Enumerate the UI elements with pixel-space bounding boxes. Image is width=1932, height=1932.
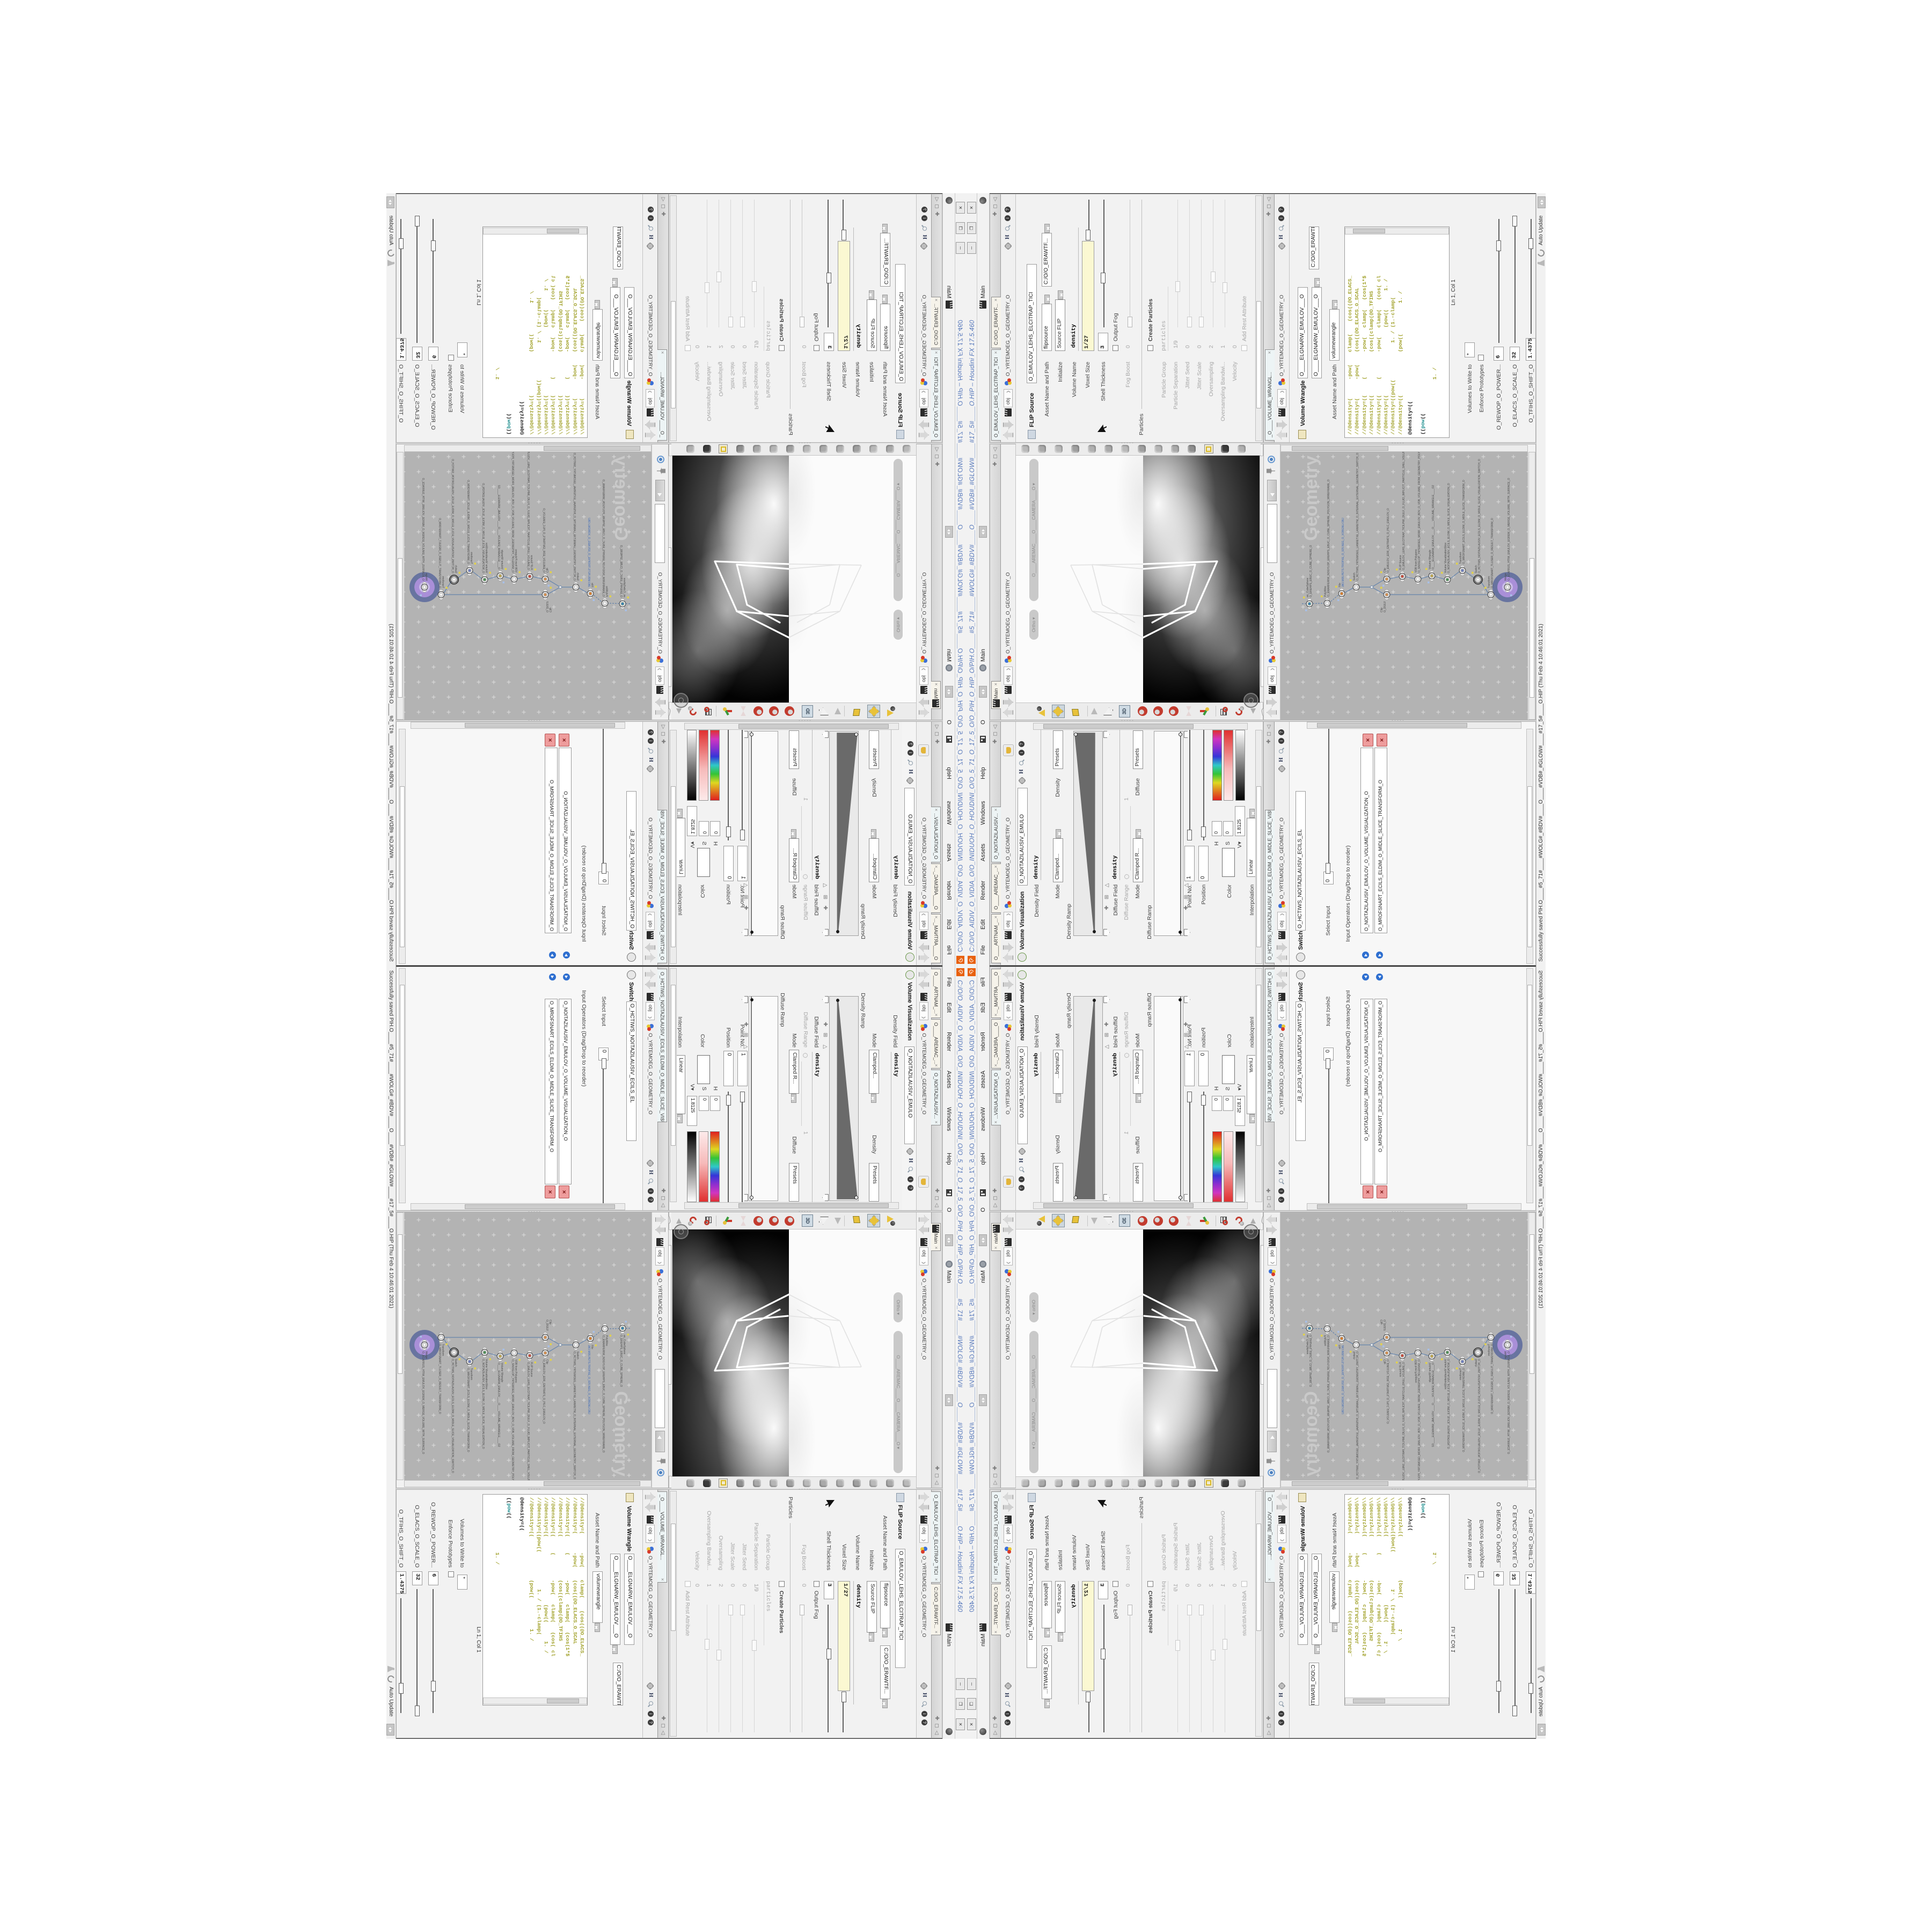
- svg-text:O_ECAFRUS_HTIW_EMULOV_EGREM_O_: O_ECAFRUS_HTIW_EMULOV_EGREM_O_MERGE_VOLU…: [421, 1351, 425, 1454]
- svg-text:Volume Wrangle: Volume Wrangle: [500, 1363, 503, 1382]
- svg-text:O_MROFSNART_TLUSER_O_RESULT_TR: O_MROFSNART_TLUSER_O_RESULT_TRANSFORM_O: [438, 518, 441, 588]
- svg-text:O_EMARFERIW_NOGYLOP_EREHPS_EBU: O_EMARFERIW_NOGYLOP_EREHPS_EBUC_O_CUBE_S…: [602, 479, 605, 597]
- svg-text:O_DIULF: O_DIULF: [1384, 1320, 1387, 1331]
- svg-text:Transform: Transform: [470, 1368, 473, 1380]
- svg-text:O_MROFSNART_ECILS_ELDIM_O_MIDL: O_MROFSNART_ECILS_ELDIM_O_MIDLE_SLICE_TR…: [1462, 1368, 1466, 1452]
- svg-text:O_SNOGLOP_YRTEMOEG_MORF_EMULOV: O_SNOGLOP_YRTEMOEG_MORF_EMULOV_BDV_O_VDB…: [511, 452, 514, 573]
- svg-text:J8O.M05.PETS.TROPXE_O_925.NEG_: J8O.M05.PETS.TROPXE_O_925.NEG_O_XOBGNU.O…: [587, 1345, 590, 1414]
- svg-text:VDB from Polygons: VDB from Polygons: [514, 549, 517, 573]
- svg-text:O____ELGNARW_EMULOV____O____VO: O____ELGNARW_EMULOV____O____VOLUME_WRANG…: [497, 1363, 500, 1447]
- svg-text:O_ECAFRUS_HTIW_EMULOV_EGREM_O_: O_ECAFRUS_HTIW_EMULOV_EGREM_O_MERGE_VOLU…: [1507, 1351, 1511, 1454]
- svg-text:an_CubeSphere: an_CubeSphere: [623, 577, 626, 597]
- svg-text:O_HCTIWS_NOITAZILAUSIV_ECILS_E: O_HCTIWS_NOITAZILAUSIV_ECILS_ELDIM_O_MID…: [1478, 459, 1481, 573]
- svg-text:Geometry: Geometry: [611, 456, 631, 541]
- svg-text:O_HCTIWS_NOITAZILAUSIV_ECILS_E: O_HCTIWS_NOITAZILAUSIV_ECILS_ELDIM_O_MID…: [451, 1359, 454, 1473]
- svg-text:O_ECAFRUS_HTIW_EMULOV_EGREM_O_: O_ECAFRUS_HTIW_EMULOV_EGREM_O_MERGE_VOLU…: [1507, 478, 1511, 581]
- svg-text:O_EREHPS_EBUC_O_CUBE_SPHERE_O: O_EREHPS_EBUC_O_CUBE_SPHERE_O: [1309, 545, 1313, 597]
- svg-text:Geometry: Geometry: [611, 1391, 631, 1476]
- svg-text:PolyWire: PolyWire: [605, 586, 608, 597]
- svg-text:O_DIULF: O_DIULF: [1384, 601, 1387, 612]
- svg-text:O_DIULF: O_DIULF: [545, 1320, 548, 1331]
- svg-text:FLIP Source: FLIP Source: [530, 1362, 533, 1377]
- svg-text:File: File: [590, 583, 594, 587]
- svg-text:Geometry: Geometry: [1301, 1391, 1321, 1476]
- svg-text:Clip: Clip: [548, 608, 552, 612]
- svg-text:PolyWire: PolyWire: [605, 1335, 608, 1346]
- svg-text:Merge: Merge: [425, 573, 428, 581]
- svg-text:Volume VisualizationSlice: Volume VisualizationSlice: [485, 543, 488, 573]
- svg-text:O_EMULOV_EDR_GNITRATS_O_PILC_E: O_EMULOV_EDR_GNITRATS_O_PILC_EMULOV_O: [1387, 1359, 1390, 1424]
- svg-text:O_EMULOV_EDR_GNITRATS_O_PILC_E: O_EMULOV_EDR_GNITRATS_O_PILC_EMULOV_O: [1387, 508, 1390, 573]
- svg-text:O_EMARFERIW_NOGYLOP_EREHPS_EBU: O_EMARFERIW_NOGYLOP_EREHPS_EBUC_O_CUBE_S…: [1327, 1335, 1330, 1453]
- svg-text:O_MROFSNART_TLUSER_O_RESULT_TR: O_MROFSNART_TLUSER_O_RESULT_TRANSFORM_O: [1491, 518, 1494, 588]
- svg-text:Transform: Transform: [441, 1344, 444, 1356]
- svg-text:O_NOITAZILAUSIV_ECILS_ELDIM_O_: O_NOITAZILAUSIV_ECILS_ELDIM_O_MIDLE_SLIC…: [1447, 1359, 1451, 1449]
- svg-text:O_SNOGLOP_YRTEMOEG_MORF_EMULOV: O_SNOGLOP_YRTEMOEG_MORF_EMULOV_BDV_O_VDB…: [1418, 452, 1421, 573]
- svg-text:O_HCTIWS_YRTEMOEG_LANRETXE_LAN: O_HCTIWS_YRTEMOEG_LANRETXE_LANRETNI_O_IN…: [1356, 1351, 1359, 1479]
- svg-text:O_EMULOV_LEHS_ELCITRAP_TICILPM: O_EMULOV_LEHS_ELCITRAP_TICILPMI_DIULF_O_…: [1402, 452, 1406, 570]
- svg-text:Switch: Switch: [576, 573, 579, 581]
- svg-text:Geometry: Geometry: [1301, 456, 1321, 541]
- svg-text:O_MROFSNART_TLUSER_O_RESULT_TR: O_MROFSNART_TLUSER_O_RESULT_TRANSFORM_O: [438, 1344, 441, 1414]
- svg-text:J8O.M05.PETS.TROPXE_O_925.NEG_: J8O.M05.PETS.TROPXE_O_925.NEG_O_XOBGNU.O…: [1342, 1345, 1345, 1414]
- svg-text:Transform: Transform: [470, 552, 473, 564]
- svg-text:O____ELGNARW_EMULOV____O____VO: O____ELGNARW_EMULOV____O____VOLUME_WRANG…: [1432, 1363, 1435, 1447]
- svg-text:an_CubeSphere: an_CubeSphere: [623, 1335, 626, 1355]
- svg-text:O____ELGNARW_EMULOV____O____VO: O____ELGNARW_EMULOV____O____VOLUME_WRANG…: [1432, 485, 1435, 569]
- svg-text:O_MROFSNART_ECILS_ELDIM_O_MIDL: O_MROFSNART_ECILS_ELDIM_O_MIDLE_SLICE_TR…: [1462, 480, 1466, 564]
- svg-text:O_NOITAZILAUSIV_ECILS_ELDIM_O_: O_NOITAZILAUSIV_ECILS_ELDIM_O_MIDLE_SLIC…: [1447, 483, 1451, 573]
- svg-text:O_HCTIWS_YRTEMOEG_LANRETXE_LAN: O_HCTIWS_YRTEMOEG_LANRETXE_LANRETNI_O_IN…: [573, 453, 576, 581]
- svg-text:Clip: Clip: [545, 1359, 548, 1364]
- svg-text:Volume VisualizationSlice: Volume VisualizationSlice: [485, 1359, 488, 1389]
- svg-text:O_SNOGLOP_YRTEMOEG_MORF_EMULOV: O_SNOGLOP_YRTEMOEG_MORF_EMULOV_BDV_O_VDB…: [1418, 1359, 1421, 1480]
- svg-text:O_HCTIWS_YRTEMOEG_LANRETXE_LAN: O_HCTIWS_YRTEMOEG_LANRETXE_LANRETNI_O_IN…: [573, 1351, 576, 1479]
- svg-text:Switch: Switch: [454, 565, 457, 573]
- svg-text:O_EREHPS_EBUC_O_CUBE_SPHERE_O: O_EREHPS_EBUC_O_CUBE_SPHERE_O: [619, 1335, 623, 1387]
- svg-text:O_MROFSNART_TLUSER_O_RESULT_TR: O_MROFSNART_TLUSER_O_RESULT_TRANSFORM_O: [1491, 1344, 1494, 1414]
- svg-text:O_EMARFERIW_NOGYLOP_EREHPS_EBU: O_EMARFERIW_NOGYLOP_EREHPS_EBUC_O_CUBE_S…: [1327, 479, 1330, 597]
- svg-text:O_HCTIWS_NOITAZILAUSIV_ECILS_E: O_HCTIWS_NOITAZILAUSIV_ECILS_ELDIM_O_MID…: [451, 459, 454, 573]
- svg-text:Switch: Switch: [576, 1351, 579, 1359]
- svg-text:O_MROFSNART_ECILS_ELDIM_O_MIDL: O_MROFSNART_ECILS_ELDIM_O_MIDLE_SLICE_TR…: [466, 1368, 470, 1452]
- svg-text:O_EREHPS_EBUC_O_CUBE_SPHERE_O: O_EREHPS_EBUC_O_CUBE_SPHERE_O: [619, 545, 623, 597]
- svg-text:O_EMULOV_LEHS_ELCITRAP_TICILPM: O_EMULOV_LEHS_ELCITRAP_TICILPMI_DIULF_O_…: [526, 1362, 530, 1480]
- svg-text:FLIP Source: FLIP Source: [530, 555, 533, 570]
- svg-text:O_EMULOV_LEHS_ELCITRAP_TICILPM: O_EMULOV_LEHS_ELCITRAP_TICILPMI_DIULF_O_…: [1402, 1362, 1406, 1480]
- svg-text:O____ELGNARW_EMULOV____O____VO: O____ELGNARW_EMULOV____O____VOLUME_WRANG…: [497, 485, 500, 569]
- svg-text:O_EREHPS_EBUC_O_CUBE_SPHERE_O: O_EREHPS_EBUC_O_CUBE_SPHERE_O: [1309, 1335, 1313, 1387]
- svg-text:J8O.M05.PETS.TROPXE_O_925.NEG_: J8O.M05.PETS.TROPXE_O_925.NEG_O_XOBGNU.O…: [1342, 518, 1345, 587]
- svg-text:O_HCTIWS_YRTEMOEG_LANRETXE_LAN: O_HCTIWS_YRTEMOEG_LANRETXE_LANRETNI_O_IN…: [1356, 453, 1359, 581]
- svg-text:O_MROFSNART_ECILS_ELDIM_O_MIDL: O_MROFSNART_ECILS_ELDIM_O_MIDLE_SLICE_TR…: [466, 480, 470, 564]
- svg-text:Clip: Clip: [545, 568, 548, 573]
- svg-text:J8O.M05.PETS.TROPXE_O_925.NEG_: J8O.M05.PETS.TROPXE_O_925.NEG_O_XOBGNU.O…: [587, 518, 590, 587]
- svg-text:VDB from Polygons: VDB from Polygons: [514, 1359, 517, 1383]
- svg-text:Clip: Clip: [548, 1320, 552, 1324]
- svg-text:O_EMULOV_EDR_GNITRATS_O_PILC_E: O_EMULOV_EDR_GNITRATS_O_PILC_EMULOV_O: [542, 508, 545, 573]
- svg-text:Transform: Transform: [441, 576, 444, 588]
- svg-text:O_ECAFRUS_HTIW_EMULOV_EGREM_O_: O_ECAFRUS_HTIW_EMULOV_EGREM_O_MERGE_VOLU…: [421, 478, 425, 581]
- svg-text:O_SNOGLOP_YRTEMOEG_MORF_EMULOV: O_SNOGLOP_YRTEMOEG_MORF_EMULOV_BDV_O_VDB…: [511, 1359, 514, 1480]
- svg-text:O_NOITAZILAUSIV_ECILS_ELDIM_O_: O_NOITAZILAUSIV_ECILS_ELDIM_O_MIDLE_SLIC…: [481, 1359, 485, 1449]
- svg-text:O_EMULOV_EDR_GNITRATS_O_PILC_E: O_EMULOV_EDR_GNITRATS_O_PILC_EMULOV_O: [542, 1359, 545, 1424]
- svg-text:Switch: Switch: [454, 1359, 457, 1367]
- svg-text:O_HCTIWS_NOITAZILAUSIV_ECILS_E: O_HCTIWS_NOITAZILAUSIV_ECILS_ELDIM_O_MID…: [1478, 1359, 1481, 1473]
- svg-text:O_EMULOV_LEHS_ELCITRAP_TICILPM: O_EMULOV_LEHS_ELCITRAP_TICILPMI_DIULF_O_…: [526, 452, 530, 570]
- svg-text:O_DIULF: O_DIULF: [545, 601, 548, 612]
- svg-text:Volume Wrangle: Volume Wrangle: [500, 550, 503, 569]
- svg-text:Merge: Merge: [425, 1351, 428, 1359]
- svg-text:O_NOITAZILAUSIV_ECILS_ELDIM_O_: O_NOITAZILAUSIV_ECILS_ELDIM_O_MIDLE_SLIC…: [481, 483, 485, 573]
- svg-text:File: File: [590, 1345, 594, 1349]
- svg-text:O_EMARFERIW_NOGYLOP_EREHPS_EBU: O_EMARFERIW_NOGYLOP_EREHPS_EBUC_O_CUBE_S…: [602, 1335, 605, 1453]
